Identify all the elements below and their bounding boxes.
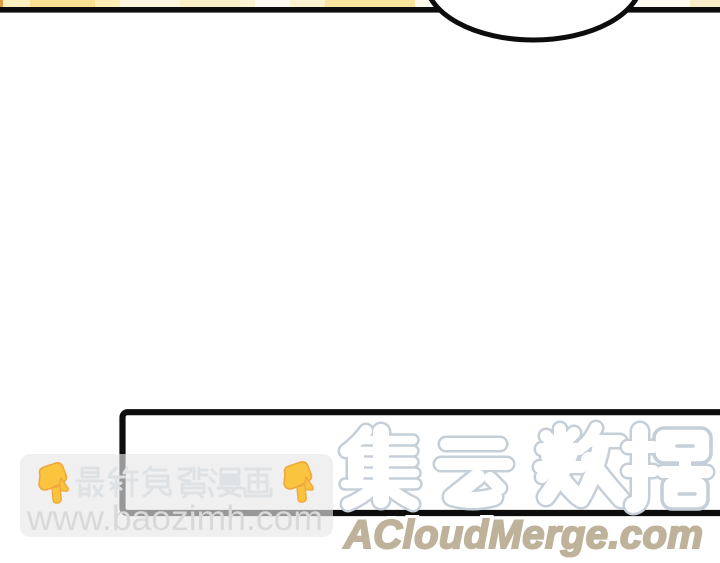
svg-text:www.baozimh.com: www.baozimh.com (26, 498, 323, 538)
svg-text:ACloudMerge.com: ACloudMerge.com (343, 513, 703, 557)
